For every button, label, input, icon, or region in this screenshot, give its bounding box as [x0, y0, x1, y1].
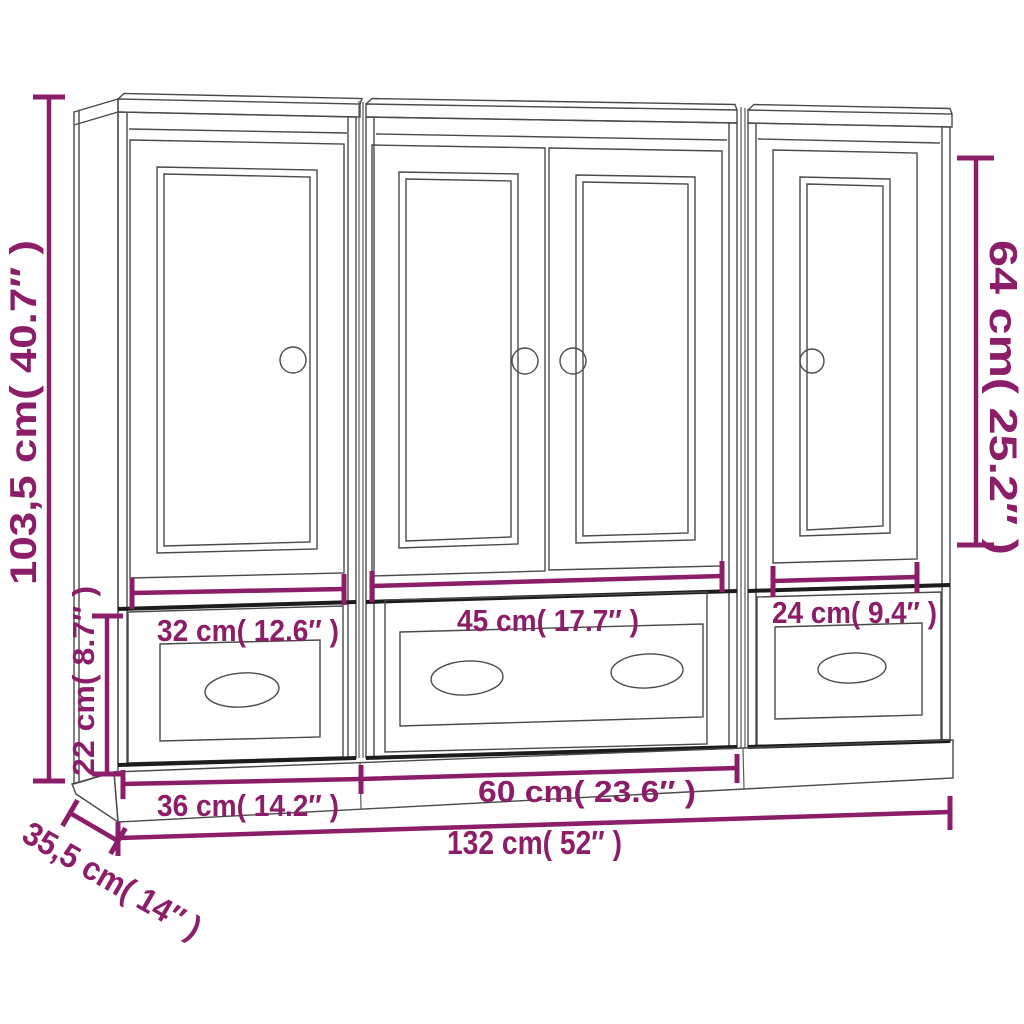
- drawer-handle: [204, 670, 280, 709]
- left-cabinet: [118, 94, 362, 766]
- product-dimension-image: 103,5 cm( 40.7″ ) 22 cm( 8.7″ ) 64 cm( 2…: [0, 0, 1024, 1024]
- door-panel-bevel: [164, 174, 310, 546]
- door-panel: [399, 172, 518, 548]
- dim-door-height: 64 cm( 25.2″ ): [957, 158, 1024, 555]
- door-panel: [157, 167, 317, 553]
- door-knob: [800, 349, 824, 373]
- drawer-handle: [610, 652, 684, 690]
- right-cabinet: [748, 105, 952, 748]
- plinth-seam: [743, 748, 744, 789]
- door-knob: [560, 348, 586, 374]
- door-panel: [800, 177, 890, 536]
- door: [773, 150, 917, 563]
- dim-line: [372, 576, 722, 586]
- dim-left-opening-label: 32 cm( 12.6″ ): [157, 613, 339, 648]
- opening-top-line: [376, 134, 727, 140]
- cabinet-junction: [741, 107, 745, 748]
- furniture-drawing: [72, 94, 953, 823]
- shelf-edge: [748, 585, 950, 591]
- dim-base-height: 22 cm( 8.7″ ): [66, 586, 123, 776]
- dim-depth-label: 35,5 cm( 14″ ): [17, 814, 209, 946]
- drawer-handle: [817, 651, 886, 685]
- dim-line: [132, 589, 344, 593]
- dim-unit-widths: 36 cm( 14.2″ ) 60 cm( 23.6″ ): [123, 754, 737, 823]
- middle-cabinet: [366, 99, 737, 759]
- door-panel-bevel: [583, 182, 688, 536]
- base-edge: [366, 747, 737, 758]
- door-right: [549, 148, 722, 570]
- dim-total-height: 103,5 cm( 40.7″ ): [3, 97, 65, 781]
- cabinet-front: [366, 117, 737, 758]
- drawer-panel: [775, 623, 922, 719]
- door-panel-bevel: [807, 184, 883, 530]
- opening-top-line: [129, 129, 347, 133]
- dim-tick: [63, 800, 78, 826]
- dim-total-height-label: 103,5 cm( 40.7″ ): [3, 240, 44, 585]
- dim-right-opening-width: 24 cm( 9.4″ ): [772, 562, 937, 630]
- door-panel-bevel: [406, 179, 511, 541]
- dim-base-height-label: 22 cm( 8.7″ ): [66, 586, 101, 776]
- dim-center-unit-width-label: 60 cm( 23.6″ ): [478, 774, 696, 809]
- dim-center-opening-label: 45 cm( 17.7″ ): [457, 603, 639, 638]
- dimension-diagram: 103,5 cm( 40.7″ ) 22 cm( 8.7″ ) 64 cm( 2…: [0, 0, 1024, 1024]
- top-board-top-edge: [118, 94, 362, 105]
- shelf-edge: [118, 602, 356, 609]
- drawer-handle: [430, 659, 504, 697]
- opening-top-line: [758, 139, 940, 143]
- door: [130, 140, 344, 578]
- door-knob: [280, 347, 306, 373]
- cabinet-junction: [359, 101, 363, 758]
- drawer-panel: [160, 640, 320, 741]
- dim-door-height-label: 64 cm( 25.2″ ): [981, 240, 1024, 555]
- door-left: [372, 145, 545, 576]
- drawer-panel: [400, 624, 703, 726]
- dim-right-opening-label: 24 cm( 9.4″ ): [772, 595, 937, 630]
- dim-side-unit-width-label: 36 cm( 14.2″ ): [157, 788, 339, 823]
- side-panel-top-line: [74, 112, 118, 125]
- door-knob: [512, 348, 538, 374]
- door-panel: [576, 175, 695, 543]
- dim-total-width-label: 132 cm( 52″ ): [447, 824, 622, 861]
- dim-line: [773, 577, 917, 581]
